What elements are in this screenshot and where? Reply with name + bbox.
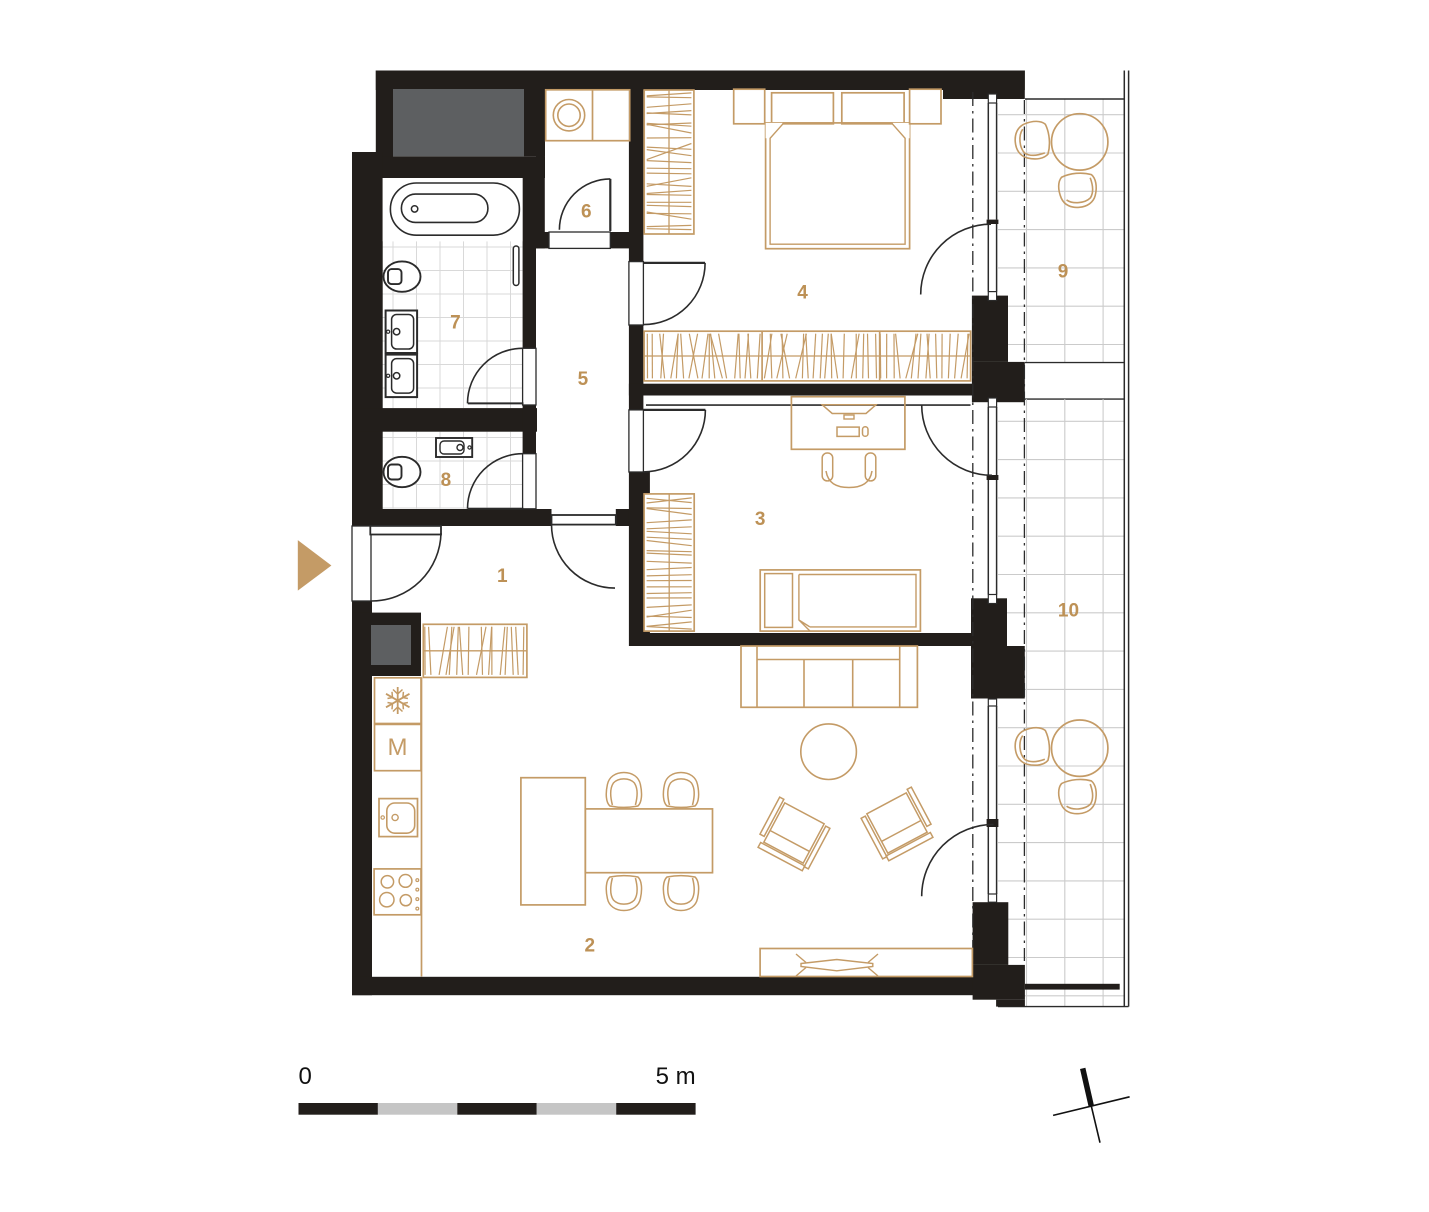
svg-text:M: M bbox=[388, 734, 408, 761]
svg-text:8: 8 bbox=[441, 470, 452, 491]
svg-text:4: 4 bbox=[797, 283, 808, 304]
svg-text:2: 2 bbox=[585, 936, 596, 957]
svg-text:6: 6 bbox=[581, 202, 592, 223]
svg-text:0: 0 bbox=[299, 1063, 312, 1090]
svg-text:1: 1 bbox=[497, 566, 508, 587]
svg-text:10: 10 bbox=[1058, 600, 1079, 621]
svg-text:9: 9 bbox=[1058, 262, 1069, 283]
svg-text:5: 5 bbox=[578, 369, 589, 390]
svg-text:7: 7 bbox=[450, 313, 461, 334]
svg-text:3: 3 bbox=[755, 509, 766, 530]
svg-text:5 m: 5 m bbox=[656, 1063, 696, 1090]
